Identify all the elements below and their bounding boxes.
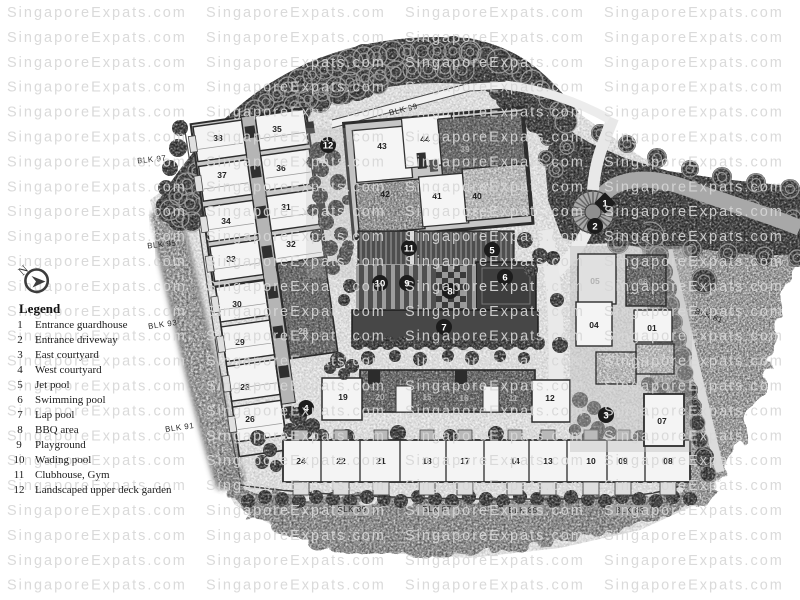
svg-text:BBQ area: BBQ area [35, 424, 79, 436]
svg-text:Playground: Playground [35, 439, 86, 451]
svg-text:Entrance driveway: Entrance driveway [35, 334, 118, 346]
svg-text:Swimming pool: Swimming pool [35, 394, 106, 406]
svg-text:2: 2 [17, 334, 23, 346]
svg-text:Jet pool: Jet pool [35, 379, 70, 391]
svg-text:39: 39 [460, 144, 470, 154]
svg-text:1: 1 [17, 319, 23, 331]
svg-text:Landscaped upper deck garden: Landscaped upper deck garden [35, 484, 172, 496]
svg-text:11: 11 [404, 244, 415, 255]
svg-text:05: 05 [590, 276, 600, 286]
svg-text:16: 16 [459, 393, 469, 403]
svg-text:9: 9 [16, 439, 22, 451]
svg-text:Wading pool: Wading pool [35, 454, 91, 466]
svg-text:12: 12 [545, 393, 555, 403]
svg-text:West courtyard: West courtyard [35, 364, 102, 376]
svg-text:11: 11 [14, 469, 25, 481]
svg-text:Legend: Legend [19, 301, 61, 316]
svg-text:5: 5 [17, 379, 23, 391]
svg-text:Clubhouse, Gym: Clubhouse, Gym [35, 469, 110, 481]
svg-text:Entrance guardhouse: Entrance guardhouse [35, 319, 128, 331]
svg-text:10: 10 [14, 454, 26, 466]
svg-text:2: 2 [592, 222, 597, 233]
svg-text:3: 3 [17, 349, 23, 361]
svg-text:10: 10 [586, 456, 596, 466]
svg-text:Lap pool: Lap pool [35, 409, 74, 421]
svg-text:04: 04 [589, 320, 599, 330]
svg-text:12: 12 [14, 484, 25, 496]
svg-text:8: 8 [17, 424, 23, 436]
svg-text:7: 7 [17, 409, 23, 421]
svg-text:6: 6 [17, 394, 23, 406]
svg-text:East courtyard: East courtyard [35, 349, 99, 361]
svg-text:11: 11 [509, 393, 518, 403]
svg-text:4: 4 [17, 364, 23, 376]
